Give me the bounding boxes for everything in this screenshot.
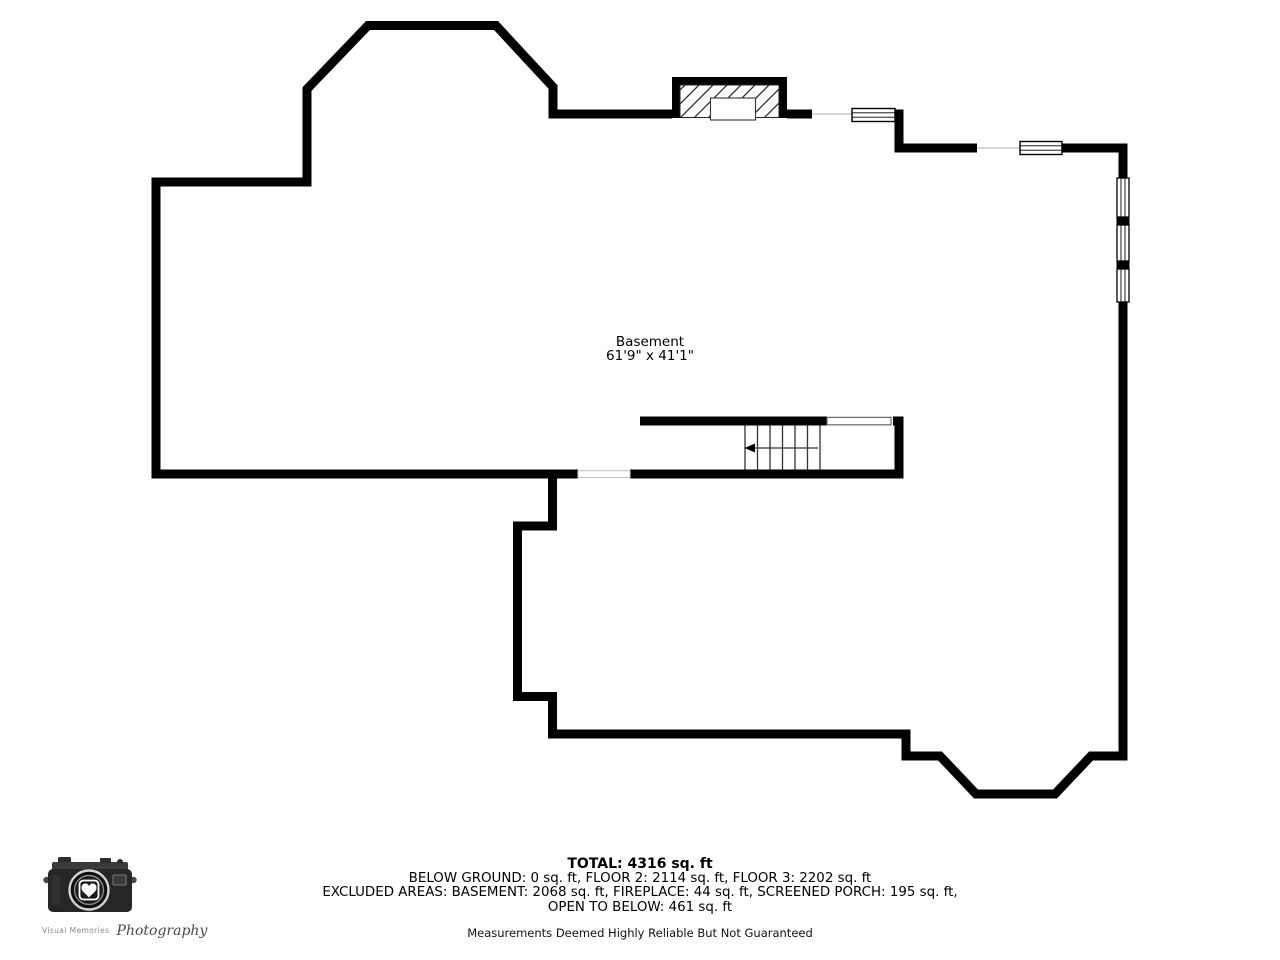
floorplan-page: Basement 61'9" x 41'1" TOTAL: 4316 sq. f… [0, 0, 1280, 960]
window-right-1 [1117, 178, 1129, 217]
excluded-areas-text: EXCLUDED AREAS: BASEMENT: 2068 sq. ft, F… [0, 886, 1280, 900]
total-area-text: TOTAL: 4316 sq. ft [0, 857, 1280, 872]
wall-right-and-lower-outline [518, 301, 1124, 794]
wall-stair-right [893, 421, 899, 478]
walls-group [152, 26, 1124, 795]
window-top-1 [852, 109, 895, 122]
stair-railing-opening [827, 417, 891, 424]
window-right-3 [1117, 269, 1129, 302]
camera-icon [42, 856, 138, 918]
staircase [745, 426, 821, 470]
logo-script-text: Photography [117, 923, 208, 939]
stair-direction-arrow-icon [745, 444, 756, 453]
room-dimensions: 61'9" x 41'1" [550, 350, 750, 364]
fireplace-firebox [711, 98, 756, 120]
window-separator-2 [1117, 261, 1130, 269]
open-to-below-text: OPEN TO BELOW: 461 sq. ft [0, 901, 1280, 915]
wall-top-right-step2 [1062, 148, 1123, 179]
floors-area-text: BELOW GROUND: 0 sq. ft, FLOOR 2: 2114 sq… [0, 872, 1280, 886]
windows-right-group [1117, 178, 1130, 302]
window-top-2 [1020, 142, 1062, 155]
window-right-2 [1117, 225, 1129, 261]
floorplan-drawing [0, 0, 1280, 960]
window-separator-1 [1117, 217, 1130, 225]
logo-name-text: Visual Memories [42, 926, 109, 935]
camera-flash [113, 875, 126, 885]
wall-top-right-step1 [894, 114, 977, 148]
logo-text: Visual Memories Photography [42, 920, 152, 939]
photographer-logo: Visual Memories Photography [42, 856, 152, 939]
wall-upper-left-outline [156, 26, 672, 479]
room-label-block: Basement 61'9" x 41'1" [550, 336, 750, 363]
fireplace [672, 77, 787, 120]
doorway-opening [578, 471, 630, 478]
